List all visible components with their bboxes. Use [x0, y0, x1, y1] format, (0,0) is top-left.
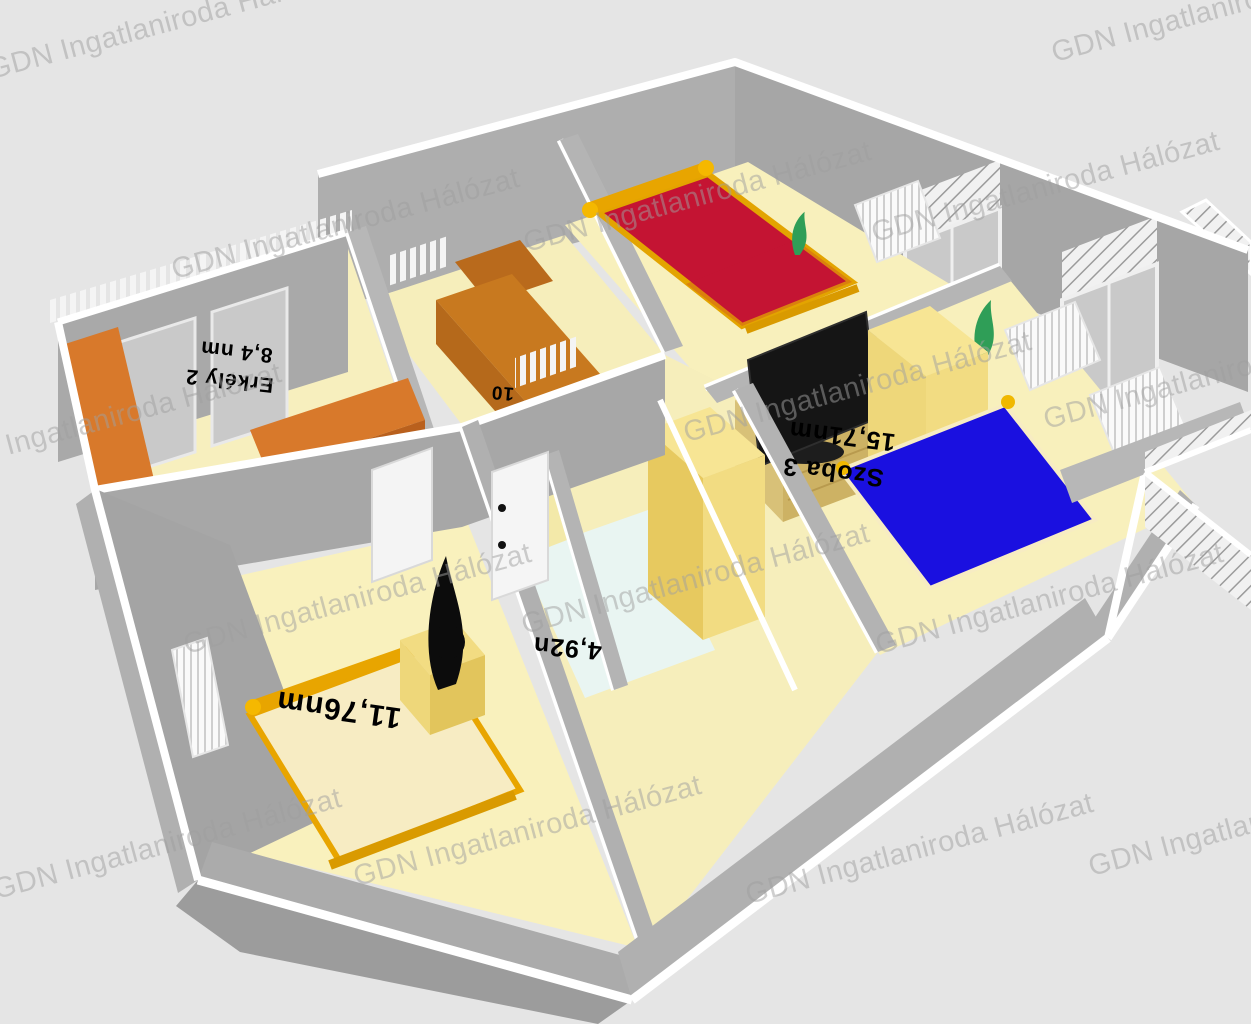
door-hinge-dot: [498, 504, 506, 512]
floorplan-3d-render: 10: [0, 0, 1251, 1024]
floorplan-stage: 10: [0, 0, 1251, 1024]
bed-post: [698, 160, 714, 176]
door-bedroom: [372, 448, 432, 582]
plant-black-decor-bulb: [431, 625, 465, 659]
room-label-hall: 10: [490, 381, 515, 404]
bed-post: [245, 699, 261, 715]
bed-knob: [1001, 395, 1015, 409]
